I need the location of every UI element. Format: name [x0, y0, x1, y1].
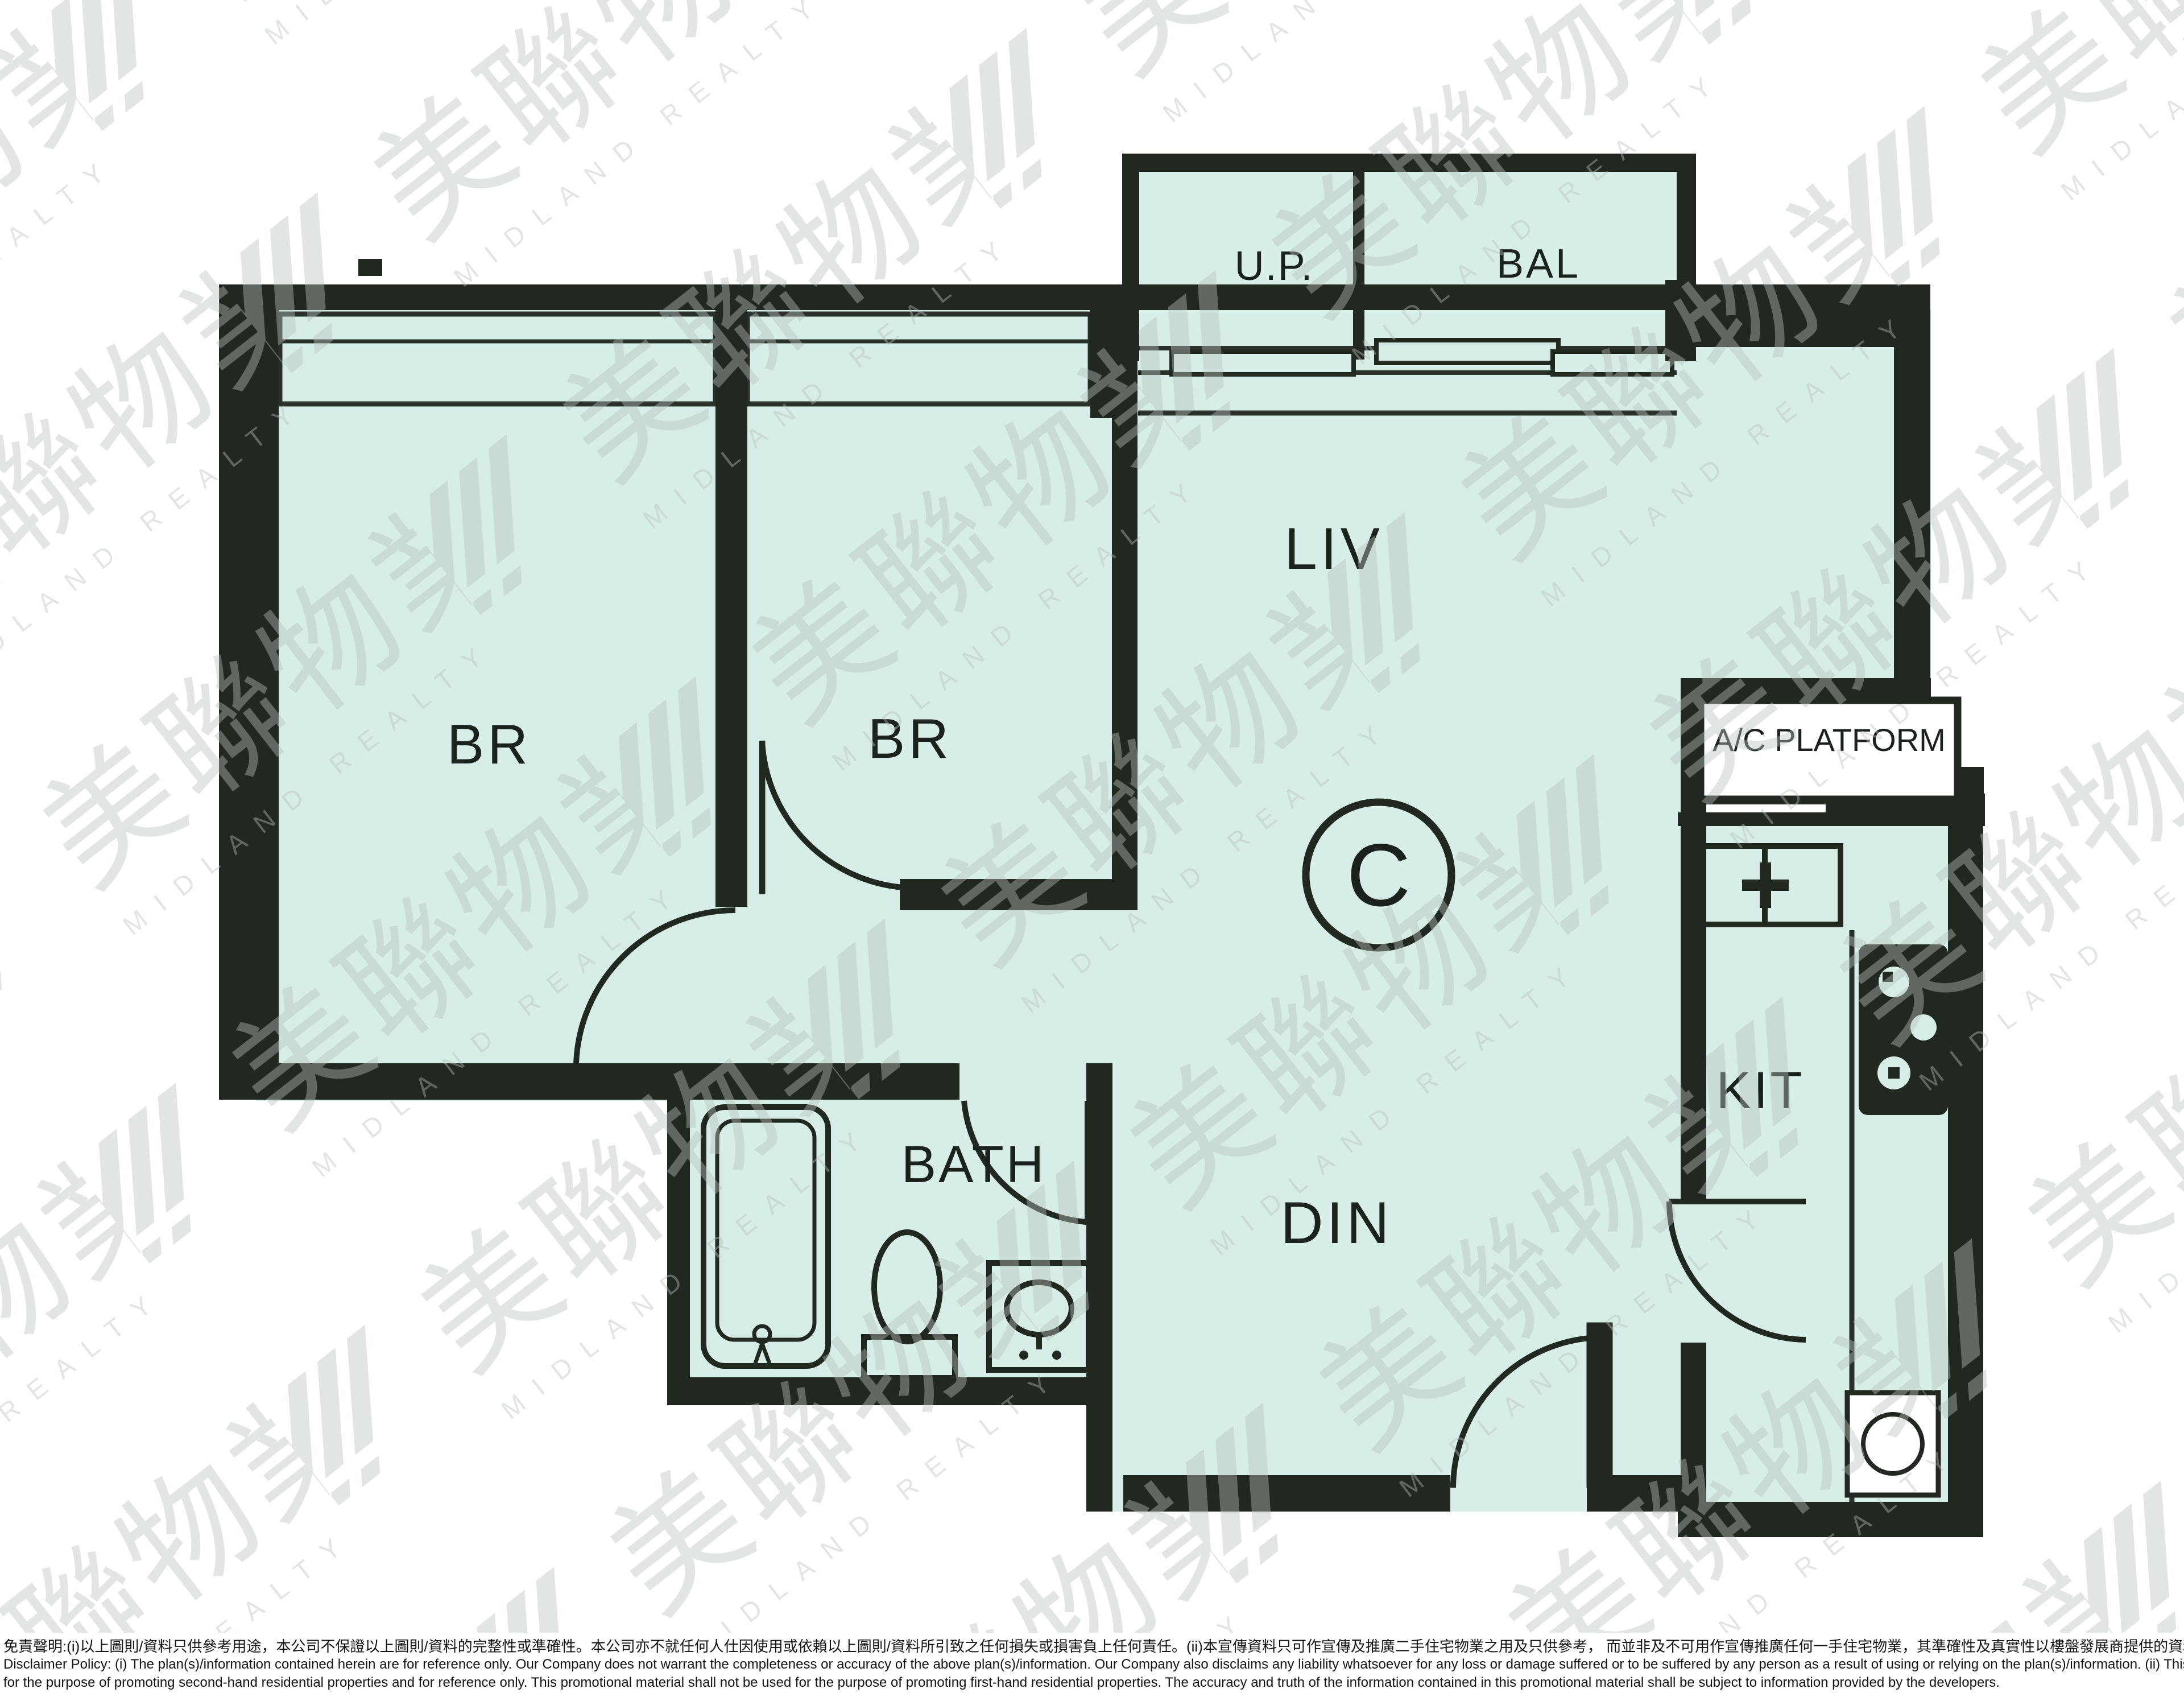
floor-plan-drawing: 美聯物業 MIDLAND REALTY: [0, 0, 2184, 1701]
disclaimer-block: 免責聲明:(i)以上圖則/資料只供參考用途，本公司不保證以上圖則/資料的完整性或…: [3, 1637, 2184, 1692]
watermark-overlay: [0, 0, 2184, 1633]
disclaimer-line-en-2: for the purpose of promoting second-hand…: [3, 1674, 2184, 1692]
disclaimer-line-zh: 免責聲明:(i)以上圖則/資料只供參考用途，本公司不保證以上圖則/資料的完整性或…: [3, 1637, 2184, 1655]
floor-plan-page: 美聯物業 MIDLAND REALTY: [0, 0, 2184, 1701]
disclaimer-line-en-1: Disclaimer Policy: (i) The plan(s)/infor…: [3, 1655, 2184, 1674]
